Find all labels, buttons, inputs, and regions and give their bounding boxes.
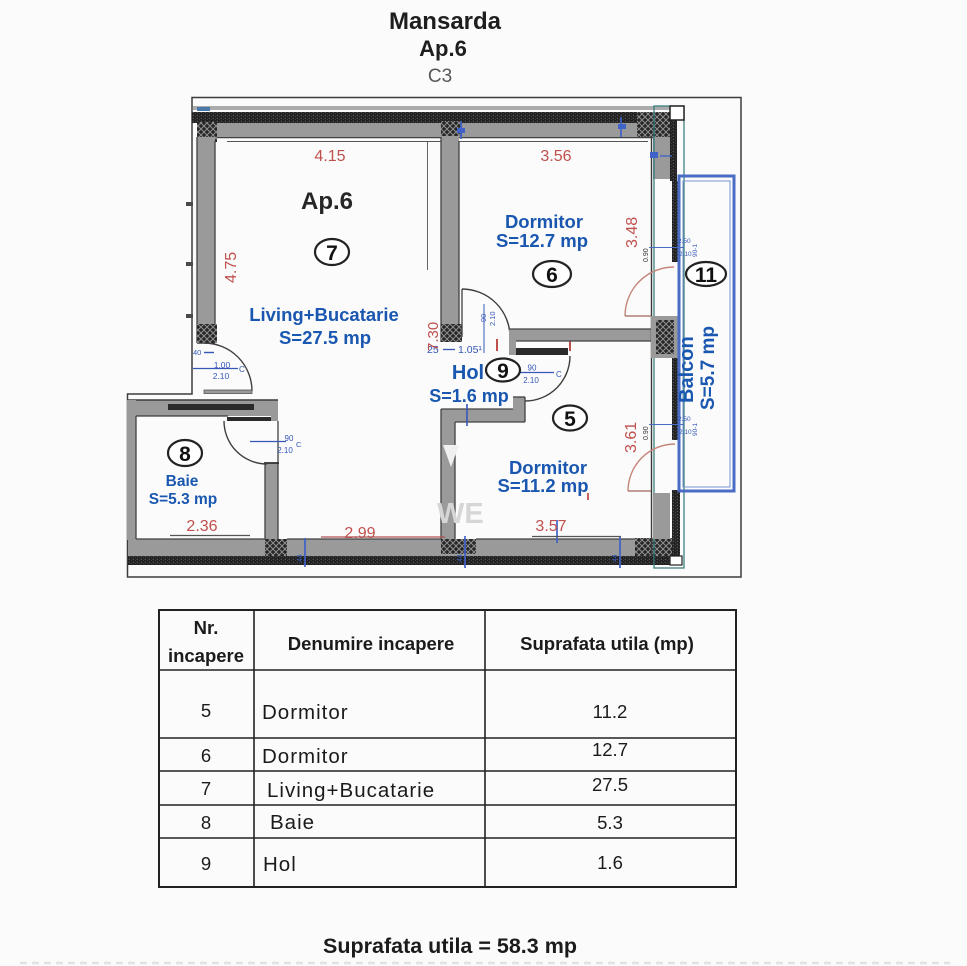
svg-text:44: 44	[457, 554, 464, 562]
svg-text:2.50: 2.50	[678, 416, 691, 423]
svg-text:44: 44	[297, 554, 304, 562]
svg-text:incapere: incapere	[168, 645, 244, 666]
svg-text:1.05¹: 1.05¹	[458, 344, 482, 356]
svg-text:Baie: Baie	[270, 811, 315, 834]
svg-text:Living+Bucatarie: Living+Bucatarie	[267, 779, 435, 802]
svg-text:C: C	[556, 370, 562, 379]
svg-text:Suprafata utila = 58.3 mp: Suprafata utila = 58.3 mp	[323, 934, 577, 958]
svg-text:3.57: 3.57	[535, 518, 566, 535]
svg-text:12.7: 12.7	[592, 739, 628, 760]
svg-text:C: C	[239, 365, 245, 374]
svg-text:4.75: 4.75	[223, 252, 240, 283]
svg-text:3.56: 3.56	[540, 148, 571, 165]
svg-text:Living+Bucatarie: Living+Bucatarie	[249, 304, 399, 325]
svg-text:Dormitor: Dormitor	[262, 701, 349, 724]
svg-text:C3: C3	[428, 66, 452, 87]
svg-text:2.50: 2.50	[678, 238, 691, 245]
svg-text:9: 9	[497, 360, 509, 383]
svg-text:Hol: Hol	[263, 853, 297, 876]
svg-text:7: 7	[201, 778, 211, 799]
svg-text:2.10: 2.10	[523, 376, 539, 385]
svg-text:2.10: 2.10	[488, 311, 497, 326]
svg-text:3.61: 3.61	[623, 422, 640, 453]
svg-text:4.15: 4.15	[314, 148, 345, 165]
svg-text:S=5.3 mp: S=5.3 mp	[149, 491, 218, 508]
svg-text:2.10: 2.10	[679, 429, 692, 436]
svg-text:1.6: 1.6	[597, 852, 623, 873]
svg-text:5: 5	[201, 700, 211, 721]
svg-text:90-1: 90-1	[692, 423, 699, 436]
svg-text:Ap.6: Ap.6	[419, 36, 467, 61]
svg-text:Denumire incapere: Denumire incapere	[288, 633, 455, 654]
svg-text:S=12.7 mp: S=12.7 mp	[496, 230, 588, 251]
svg-text:Balcon: Balcon	[676, 336, 698, 403]
svg-text:Mansarda: Mansarda	[389, 8, 502, 35]
svg-text:Dormitor: Dormitor	[505, 211, 583, 232]
svg-text:Baie: Baie	[166, 473, 199, 490]
svg-text:3.48: 3.48	[624, 217, 641, 248]
svg-text:8: 8	[179, 443, 191, 466]
svg-text:90: 90	[528, 364, 537, 373]
svg-text:2.36: 2.36	[186, 518, 217, 535]
svg-text:90-1: 90-1	[692, 244, 699, 257]
svg-text:6: 6	[546, 264, 558, 287]
svg-text:11: 11	[695, 264, 718, 287]
svg-text:0.90: 0.90	[643, 426, 650, 440]
svg-text:C: C	[296, 440, 302, 449]
svg-text:2.10: 2.10	[277, 446, 293, 455]
svg-text:7.30: 7.30	[425, 322, 442, 351]
svg-text:S=1.6 mp: S=1.6 mp	[429, 386, 509, 406]
svg-text:Nr.: Nr.	[194, 617, 219, 638]
svg-text:6: 6	[201, 745, 211, 766]
svg-text:Ap.6: Ap.6	[301, 188, 353, 215]
svg-text:0.90: 0.90	[643, 248, 650, 262]
svg-text:7: 7	[326, 242, 338, 265]
svg-text:S=11.2 mp: S=11.2 mp	[497, 475, 588, 496]
svg-text:40: 40	[193, 348, 201, 357]
svg-text:Hol: Hol	[452, 362, 484, 384]
svg-text:2.10: 2.10	[679, 251, 692, 258]
svg-text:WE: WE	[437, 498, 484, 530]
svg-text:2.99: 2.99	[344, 525, 375, 542]
svg-text:9: 9	[201, 853, 211, 874]
svg-text:S=5.7 mp: S=5.7 mp	[698, 326, 719, 410]
svg-text:11.2: 11.2	[593, 701, 628, 722]
svg-text:S=27.5 mp: S=27.5 mp	[279, 327, 371, 348]
svg-text:44: 44	[612, 554, 619, 562]
svg-text:5.3: 5.3	[597, 812, 623, 833]
svg-text:Dormitor: Dormitor	[262, 745, 349, 768]
svg-text:8: 8	[201, 812, 211, 833]
svg-text:5: 5	[564, 408, 576, 431]
svg-text:Suprafata utila (mp): Suprafata utila (mp)	[520, 633, 694, 654]
svg-text:27.5: 27.5	[592, 774, 628, 795]
svg-text:2.10: 2.10	[213, 371, 230, 381]
